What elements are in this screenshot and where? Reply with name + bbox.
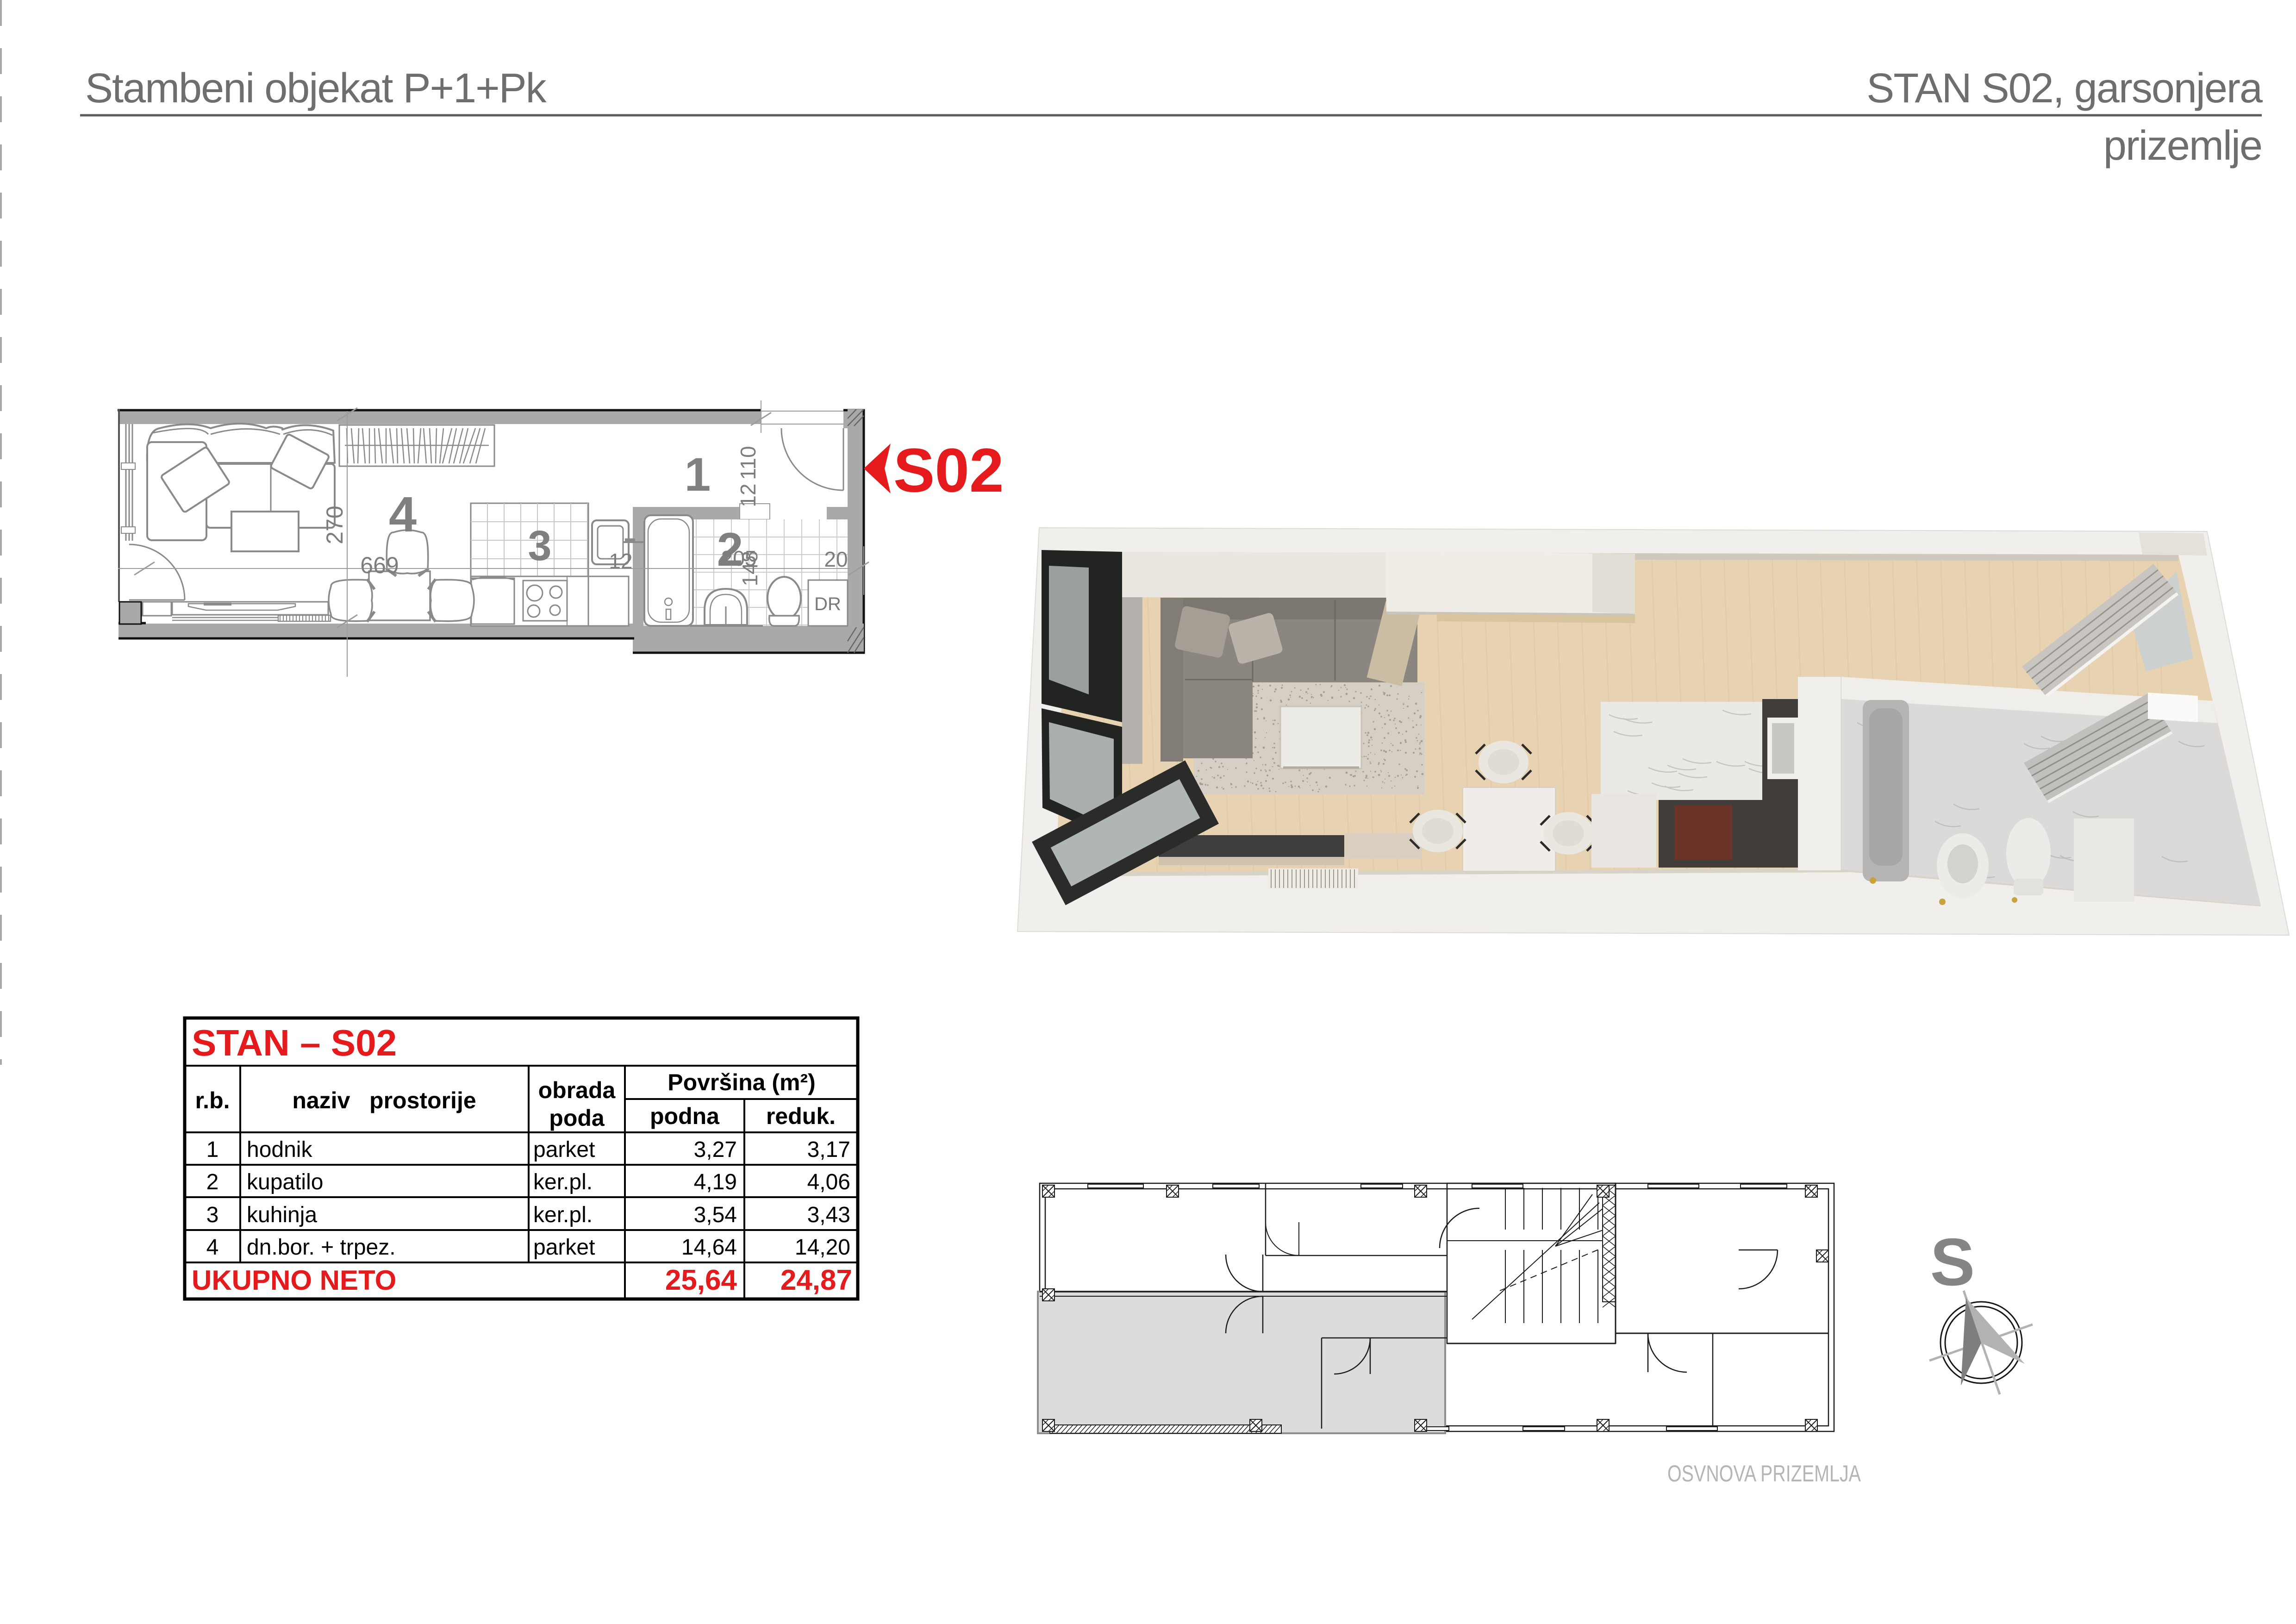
svg-text:podna: podna (650, 1103, 720, 1129)
svg-text:DR: DR (814, 594, 841, 614)
svg-text:Stambeni objekat P+1+Pk: Stambeni objekat P+1+Pk (85, 65, 547, 112)
svg-text:r.b.: r.b. (195, 1087, 230, 1113)
svg-text:STAN S02, garsonjera: STAN S02, garsonjera (1866, 65, 2263, 112)
svg-text:4,19: 4,19 (694, 1170, 737, 1194)
svg-text:parket: parket (533, 1235, 595, 1260)
svg-text:4: 4 (389, 486, 417, 542)
svg-text:S02: S02 (893, 436, 1004, 505)
svg-text:obrada: obrada (538, 1077, 616, 1103)
svg-text:3,43: 3,43 (807, 1203, 850, 1227)
svg-text:parket: parket (533, 1137, 595, 1162)
svg-text:669: 669 (360, 552, 399, 578)
svg-text:kupatilo: kupatilo (247, 1170, 323, 1194)
svg-text:ker.pl.: ker.pl. (533, 1170, 593, 1194)
svg-text:prizemlje: prizemlje (2103, 123, 2262, 169)
svg-text:14,64: 14,64 (681, 1235, 737, 1260)
svg-text:reduk.: reduk. (766, 1103, 836, 1129)
svg-text:S: S (1930, 1224, 1975, 1299)
svg-text:poda: poda (549, 1105, 605, 1131)
svg-text:270: 270 (322, 506, 348, 544)
svg-text:kuhinja: kuhinja (247, 1203, 317, 1227)
svg-text:3,17: 3,17 (807, 1137, 850, 1162)
svg-text:STAN – S02: STAN – S02 (192, 1022, 397, 1063)
svg-text:1: 1 (206, 1137, 219, 1162)
svg-text:hodnik: hodnik (247, 1137, 312, 1162)
svg-text:20: 20 (824, 547, 848, 571)
svg-text:3: 3 (206, 1203, 219, 1227)
svg-text:1: 1 (685, 448, 711, 501)
svg-text:148: 148 (738, 551, 762, 587)
svg-text:Površina (m²): Površina (m²) (668, 1069, 816, 1095)
svg-text:3,54: 3,54 (694, 1203, 737, 1227)
svg-text:OSVNOVA PRIZEMLJA: OSVNOVA PRIZEMLJA (1667, 1461, 1861, 1487)
svg-text:3: 3 (528, 522, 551, 569)
svg-text:110: 110 (736, 446, 760, 480)
svg-text:12: 12 (609, 549, 632, 573)
svg-text:dn.bor. + trpez.: dn.bor. + trpez. (247, 1235, 396, 1260)
svg-text:naziv prostorije: naziv prostorije (292, 1087, 476, 1113)
svg-text:4,06: 4,06 (807, 1170, 850, 1194)
svg-text:2: 2 (206, 1170, 219, 1194)
svg-text:14,20: 14,20 (795, 1235, 850, 1260)
svg-text:4: 4 (206, 1235, 219, 1260)
svg-text:ker.pl.: ker.pl. (533, 1203, 593, 1227)
svg-text:UKUPNO NETO: UKUPNO NETO (192, 1265, 396, 1296)
svg-text:12: 12 (736, 483, 760, 507)
svg-text:24,87: 24,87 (780, 1264, 852, 1296)
svg-text:25,64: 25,64 (665, 1264, 737, 1296)
svg-text:3,27: 3,27 (694, 1137, 737, 1162)
